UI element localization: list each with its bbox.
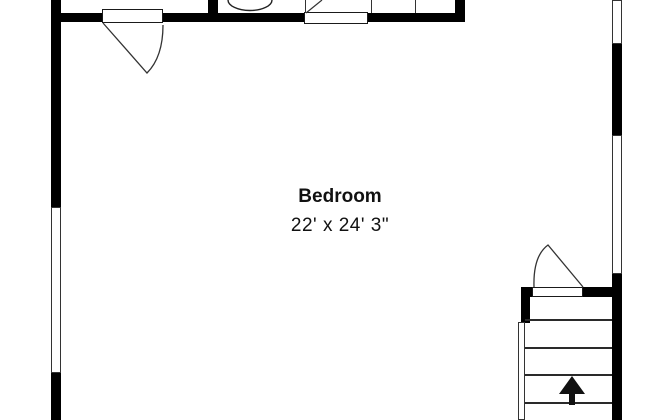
- stair-tread-line: [525, 374, 612, 376]
- door-stair-leaf: [532, 287, 583, 297]
- partition-line-c: [415, 0, 416, 13]
- bath-fixture-oval: [228, 0, 272, 11]
- door-top-center-leaf: [304, 12, 368, 24]
- stair-tread-line: [525, 319, 612, 321]
- floorplan-canvas: Bedroom 22' x 24' 3": [0, 0, 650, 420]
- wall-top-stub-left: [208, 0, 218, 22]
- partition-line-b: [371, 0, 372, 13]
- room-dimensions: 22' x 24' 3": [250, 215, 430, 237]
- stair-door-swing-arc: [534, 245, 583, 287]
- stair-tread-line: [525, 402, 612, 404]
- room-label: Bedroom: [250, 186, 430, 208]
- door-top-left-leaf: [102, 9, 163, 23]
- wall-top-stub-right: [455, 0, 465, 22]
- stair-tread-line: [525, 347, 612, 349]
- stairs-up-arrow-icon: [559, 376, 585, 405]
- door-top-left-swing-arc: [103, 23, 163, 73]
- window-right-mid: [612, 135, 622, 274]
- plan-linework: [0, 0, 650, 420]
- wall-left-upper: [51, 0, 61, 207]
- wall-left-lower: [51, 373, 61, 420]
- window-right-top: [612, 0, 622, 44]
- window-left: [51, 207, 61, 373]
- wall-right-upper: [612, 44, 622, 135]
- partition-line-a: [305, 0, 306, 13]
- stair-side-rail: [518, 322, 525, 420]
